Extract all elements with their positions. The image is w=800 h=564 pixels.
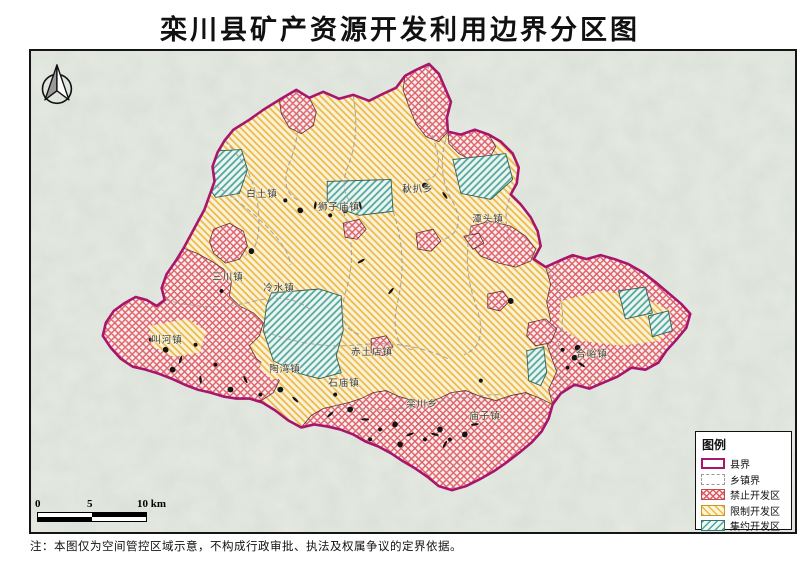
- town-label: 叫河镇: [151, 332, 183, 346]
- scale-label-0: 0: [35, 498, 41, 510]
- disclaimer-note: 注：本图仅为空间管控区域示意，不构成行政审批、执法及权属争议的定界依据。: [30, 538, 462, 554]
- town-label: 石庙镇: [328, 375, 360, 389]
- town-label: 白土镇: [246, 186, 278, 200]
- legend-item-township: 乡镇界: [701, 472, 786, 488]
- legend-item-restricted: 限制开发区: [701, 503, 786, 519]
- legend: 图例 县界 乡镇界 禁止开发区 限制开发区 集约开发区: [695, 431, 792, 530]
- legend-item-prohibited: 禁止开发区: [701, 487, 786, 503]
- scale-label-5: 5: [87, 498, 93, 510]
- town-label: 赤土店镇: [351, 344, 393, 358]
- scale-label-10km: 10 km: [137, 498, 166, 510]
- town-label: 三川镇: [212, 269, 244, 283]
- town-label: 栾川乡: [406, 396, 438, 410]
- scale-bar: 0 5 10 km: [37, 498, 187, 524]
- scale-bar-labels: 0 5 10 km: [37, 498, 187, 511]
- legend-item-county: 县界: [701, 456, 786, 472]
- town-label: 陶湾镇: [269, 361, 301, 375]
- restricted-zone-swatch: [701, 505, 725, 516]
- page-title: 栾川县矿产资源开发利用边界分区图: [0, 8, 800, 47]
- town-label: 冷水镇: [263, 280, 295, 294]
- county-boundary-swatch: [701, 458, 725, 469]
- prohibited-zone-swatch: [701, 489, 725, 500]
- township-boundary-swatch: [701, 474, 725, 485]
- map-canvas[interactable]: 白土镇狮子庙镇秋扒乡潭头镇三川镇冷水镇叫河镇陶湾镇赤土店镇石庙镇栾川乡庙子镇合峪…: [29, 49, 797, 534]
- town-label: 合峪镇: [576, 346, 608, 360]
- town-label: 潭头镇: [472, 211, 504, 225]
- zoning-map: [31, 51, 795, 532]
- intensive-zone-swatch: [701, 520, 725, 531]
- town-label: 秋扒乡: [402, 181, 434, 195]
- town-label: 狮子庙镇: [318, 199, 360, 213]
- map-page: 栾川县矿产资源开发利用边界分区图: [0, 0, 800, 564]
- legend-title: 图例: [702, 436, 786, 453]
- scale-bar-boxes: [37, 512, 147, 522]
- town-label: 庙子镇: [469, 408, 501, 422]
- legend-item-intensive: 集约开发区: [701, 518, 786, 534]
